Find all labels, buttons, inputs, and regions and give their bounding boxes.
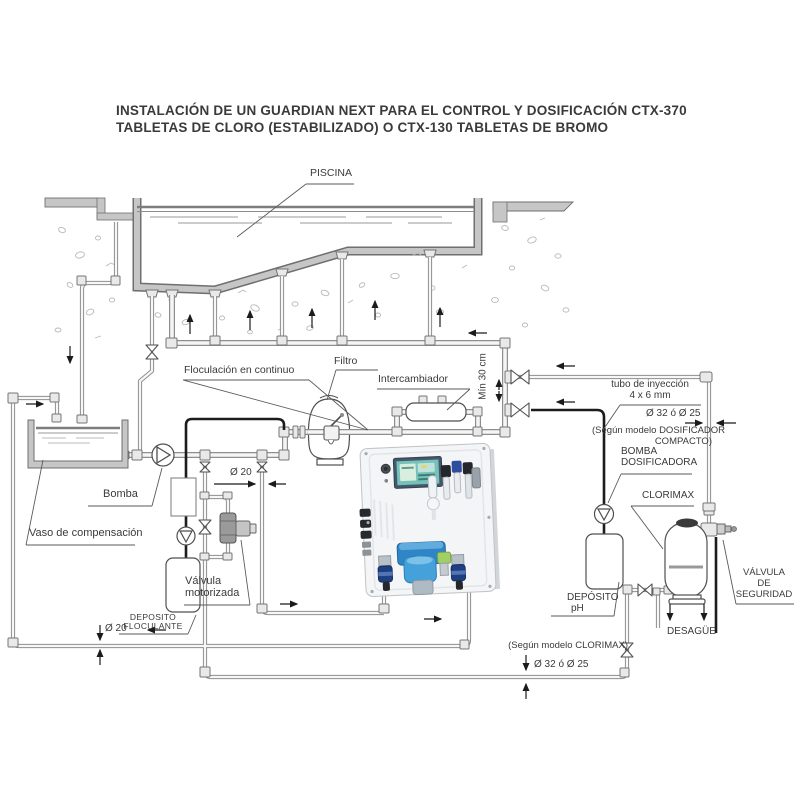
label-intercambiador: Intercambiador: [378, 373, 448, 385]
label-valvula-seguridad-3: SEGURIDAD: [733, 589, 795, 600]
label-diametro-20-retorno: Ø 20: [105, 623, 127, 634]
pool-water: [137, 207, 474, 223]
label-vaso-compensacion: Vaso de compensación: [29, 527, 143, 539]
label-bomba-dosificadora-2: DOSIFICADORA: [621, 457, 697, 468]
label-segun-clorimax: (Según modelo CLORIMAX): [506, 640, 628, 651]
floculant-strainer: [171, 478, 196, 516]
motorized-valve: [220, 513, 256, 543]
label-deposito-floculante-2: FLOCULANTE: [117, 621, 189, 631]
security-valve: [717, 524, 737, 534]
label-min-30-cm: Mín 30 cm: [478, 327, 489, 427]
heat-exchanger: [406, 403, 466, 421]
ph-tank: [586, 534, 623, 589]
label-valvula-seguridad-1: VÁLVULA: [733, 567, 795, 578]
label-deposito-ph-2: pH: [571, 603, 584, 614]
clorimax-tank: [665, 519, 707, 605]
diagram-title-line2: TABLETAS DE CLORO (ESTABILIZADO) O CTX-1…: [116, 120, 608, 135]
label-desague: DESAGÜE: [667, 626, 716, 637]
label-bomba-dosificadora-1: BOMBA: [621, 446, 657, 457]
label-tubo-inyeccion: tubo de inyección: [603, 379, 697, 390]
label-piscina: PISCINA: [310, 167, 352, 179]
guardian-next-panel: [357, 443, 500, 597]
label-deposito-ph-1: DEPÓSITO: [567, 592, 619, 603]
label-floculacion-continuo: Floculación en continuo: [184, 364, 294, 376]
label-diametro-32-25-top: Ø 32 ó Ø 25: [646, 408, 700, 419]
sand-filter: [308, 396, 352, 466]
label-valvula-motorizada-1: Válvula: [185, 575, 221, 587]
label-diametro-32-25-bottom: Ø 32 ó Ø 25: [534, 659, 588, 670]
installation-diagram-page: INSTALACIÓN DE UN GUARDIAN NEXT PARA EL …: [0, 0, 800, 800]
diagram-title-line1: INSTALACIÓN DE UN GUARDIAN NEXT PARA EL …: [116, 103, 687, 118]
floculant-pump: [177, 527, 195, 545]
dosing-pump: [595, 505, 614, 524]
label-valvula-motorizada-2: motorizada: [185, 587, 239, 599]
label-tubo-inyeccion-medida: 4 x 6 mm: [603, 390, 697, 401]
bomba-pump: [152, 444, 174, 466]
label-valvula-seguridad-2: DE: [733, 578, 795, 589]
label-segun-dosificador-1: (Según modelo DOSIFICADOR: [592, 425, 712, 436]
label-bomba: Bomba: [103, 488, 138, 500]
label-clorimax: CLORIMAX: [642, 490, 694, 501]
label-diametro-20-analisis: Ø 20: [230, 467, 252, 478]
label-filtro: Filtro: [334, 355, 357, 367]
